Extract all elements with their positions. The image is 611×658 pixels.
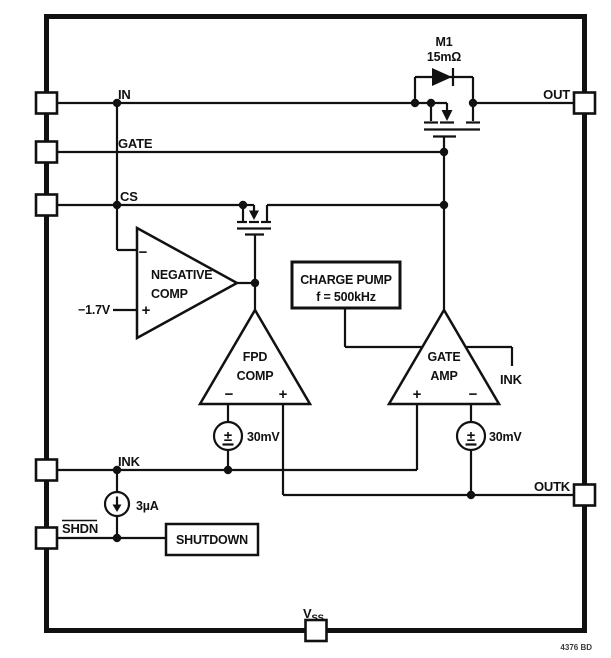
negative-comp-triangle <box>137 228 237 338</box>
junction-dot <box>467 491 475 499</box>
fpd-comp-label-1: FPD <box>243 350 268 364</box>
gateamp-noninverting-sign: + <box>413 386 422 403</box>
junction-dot <box>440 201 448 209</box>
offset-right-sign: ± <box>467 428 475 445</box>
junction-dot <box>113 534 121 542</box>
offset-left-sign: ± <box>224 428 232 445</box>
shutdown-label: SHUTDOWN <box>176 533 248 547</box>
pin-ink <box>36 460 57 481</box>
m1-rds-label: 15mΩ <box>427 50 461 64</box>
fpd-inverting-sign: − <box>225 386 234 403</box>
charge-pump-label: CHARGE PUMP <box>300 273 392 287</box>
figure-ref-label: 4376 BD <box>560 643 592 652</box>
gate-amp-label-1: GATE <box>428 350 461 364</box>
block-diagram-4376: IN GATE CS INK SHDN OUT OUTK VSS M1 15mΩ… <box>0 0 611 658</box>
negative-comp-label-1: NEGATIVE <box>151 268 212 282</box>
pin-label-ink: INK <box>118 454 141 469</box>
diode-anode-icon <box>432 68 452 86</box>
pin-label-cs: CS <box>120 189 138 204</box>
negcomp-noninverting-sign: + <box>142 302 151 319</box>
sense-mosfet-icon <box>237 205 271 235</box>
pin-label-shdn: SHDN <box>62 521 98 536</box>
fpd-noninverting-sign: + <box>279 386 288 403</box>
pin-cs <box>36 195 57 216</box>
pin-out <box>574 93 595 114</box>
sense-body-arrow-icon <box>249 211 259 221</box>
junction-dot <box>251 279 259 287</box>
pin-label-out: OUT <box>543 87 570 102</box>
current-arrow-down-icon <box>113 505 122 513</box>
pin-outk <box>574 485 595 506</box>
current-source-value: 3µA <box>136 499 159 513</box>
offset-left-value: 30mV <box>247 430 280 444</box>
junction-dot <box>239 201 247 209</box>
fpd-comp-label-2: COMP <box>237 369 274 383</box>
junction-dot <box>224 466 232 474</box>
pin-label-gate: GATE <box>118 136 153 151</box>
pin-in <box>36 93 57 114</box>
gateamp-inverting-sign: − <box>469 386 478 403</box>
m1-ref-label: M1 <box>436 35 453 49</box>
gate-amp-label-2: AMP <box>430 369 457 383</box>
current-source-icon <box>105 492 129 516</box>
junction-dot <box>440 148 448 156</box>
junction-dot <box>411 99 419 107</box>
block-diagram-figure: IN GATE CS INK SHDN OUT OUTK VSS M1 15mΩ… <box>0 0 611 658</box>
pin-label-in: IN <box>118 87 131 102</box>
pin-label-outk: OUTK <box>534 479 571 494</box>
pin-gate <box>36 142 57 163</box>
charge-pump-freq: f = 500kHz <box>316 290 376 304</box>
threshold-label: −1.7V <box>78 303 111 317</box>
ink-tap-label: INK <box>500 372 523 387</box>
offset-right-value: 30mV <box>489 430 522 444</box>
junction-dot <box>427 99 435 107</box>
pin-boxes <box>36 93 595 642</box>
m1-body-arrow-icon <box>442 110 453 121</box>
negative-comp-label-2: COMP <box>151 287 188 301</box>
negcomp-inverting-sign: − <box>139 244 148 261</box>
junction-dot <box>469 99 477 107</box>
pin-shdn <box>36 528 57 549</box>
